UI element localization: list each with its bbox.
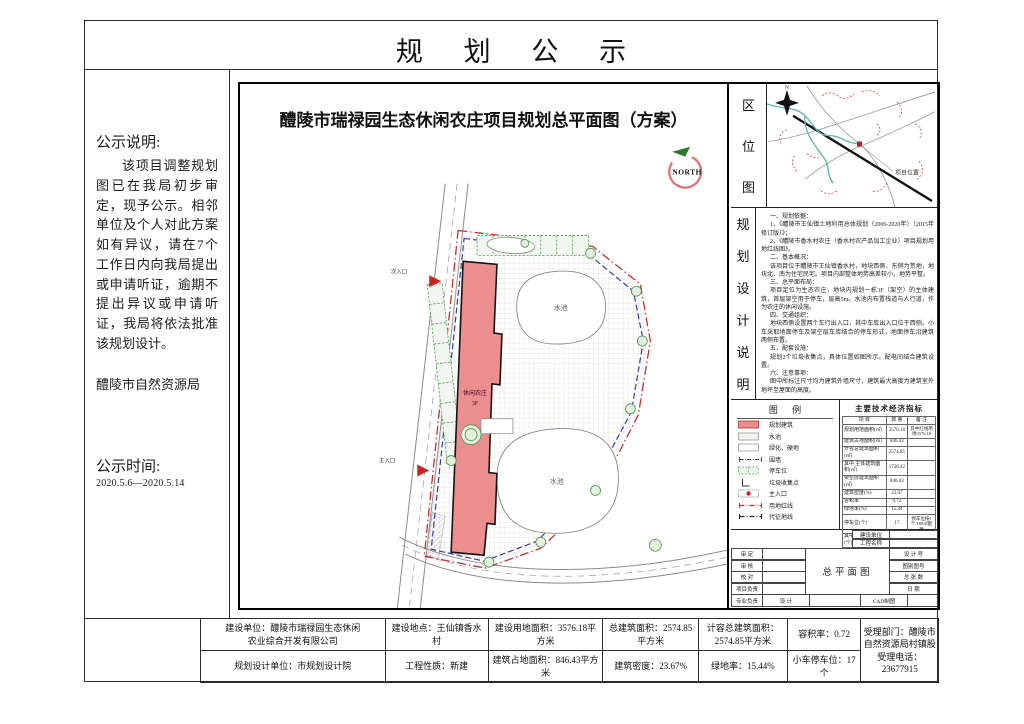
note-paragraph: 2、《醴陵市香水村农庄（香水村农产品加工企业）项目规划用地红线图》。 — [761, 238, 934, 255]
north-compass: NORTH — [664, 147, 706, 193]
pond-north-label: 水池 — [554, 303, 568, 312]
note-paragraph: 地块西侧设置两个车行出入口，其中车库出入口位于西侧。小车采取地面停车及架空层车库… — [761, 320, 934, 345]
document-sheet: 规 划 公 示 公示说明: 该项目调整规划图已在我局初步审定，现予公示。相邻单位… — [84, 20, 938, 682]
entrance-main: 主入口 — [379, 457, 429, 477]
location-map-drawing: 项目位置 N — [767, 84, 938, 207]
reviewer-label: 审 核 — [731, 560, 763, 572]
land-area-cell: 建设用地面积：3576.18平方米 — [488, 619, 602, 651]
legend-item: 停车位 — [737, 465, 833, 477]
main-entrance-swatch — [737, 489, 764, 498]
note-paragraph: 一、规划依据： — [761, 213, 934, 221]
legend-title: 图 例 — [737, 403, 833, 419]
location-map: 项目位置 N — [767, 84, 938, 207]
countable-gfa-cell: 计容总建筑面积： 2574.85平方米 — [699, 619, 788, 651]
legend-item: 围墙 — [737, 454, 833, 466]
svg-text:主入口: 主入口 — [379, 457, 395, 465]
notice-time-range: 2020.5.6—2020.5.14 — [96, 478, 218, 489]
indicators-header-row: 项 目 数 量 备 注 — [843, 417, 936, 425]
proofreader-label: 校 对 — [731, 571, 763, 583]
note-paragraph: 该项目位于醴陵市王仙镇香水村，地块西侧、东侧为荒地，地块北、南为住宅民宅。项目内… — [761, 263, 934, 280]
notice-body: 该项目调整规划图已在我局初步审定，现予公示。相邻单位及个人对此方案如有异议，请在… — [96, 156, 218, 354]
project-type-cell: 工程性质：新建 — [385, 651, 488, 683]
designer-value — [809, 594, 861, 607]
planned-building-swatch — [737, 420, 764, 429]
designer-cell: 规划设计单位：市规划设计院 — [201, 651, 386, 683]
north-arrow-icon — [672, 147, 690, 157]
indicator-row: 容积率0.72 — [843, 498, 936, 506]
summary-row-1: 建设单位：醴陵市瑞禄园生态休闲 农业综合开发有限公司 建设地点：王仙镇香水村 建… — [201, 619, 939, 651]
legend-item: 垃圾收集点 — [737, 477, 833, 489]
note-paragraph: 四、交通组织： — [761, 312, 934, 320]
legend: 图 例 规划建筑 水池 绿化、硬地 — [731, 400, 840, 529]
owner-cell: 建设单位：醴陵市瑞禄园生态休闲 农业综合开发有限公司 — [201, 619, 386, 651]
indicator-row: 计容总建筑面积(㎡)2574.85 — [843, 446, 936, 461]
project-lead-value — [762, 583, 806, 595]
map-river — [767, 104, 857, 183]
notice-heading: 公示说明: — [96, 131, 218, 152]
green-ratio-cell: 绿地率：15.44% — [699, 651, 788, 683]
proofreader-value — [762, 571, 806, 583]
far-cell: 容积率：0.72 — [787, 619, 861, 651]
legend-item: 绿化、硬地 — [737, 442, 833, 454]
indicator-row: 建筑密度(%)23.67 — [843, 490, 936, 498]
summary-row-2: 规划设计单位：市规划设计院 工程性质：新建 建筑占地面积：846.43平方米 建… — [201, 651, 939, 683]
indicators: 主要技术经济指标 项 目 数 量 备 注 规划用地面积(㎡)3576.18其中红… — [840, 400, 938, 529]
note-paragraph: 1、《醴陵市王仙镇土地利用总体规划（2006-2020年）（2015年修订版）》… — [761, 221, 934, 238]
planning-notice-page: 规 划 公 示 公示说明: 该项目调整规划图已在我局初步审定，现予公示。相邻单位… — [0, 0, 1024, 724]
pond-south-label: 水池 — [550, 476, 564, 485]
svg-text:N: N — [785, 85, 789, 91]
site-location-cell: 建设地点：王仙镇香水村 — [385, 619, 488, 651]
note-paragraph: 五、配套设施： — [761, 345, 934, 353]
drawing-frame: 水池 水池 休闲农庄 3F — [238, 82, 940, 610]
indicator-row: 绿地率(%)15.44 — [843, 506, 936, 514]
garbage-point-swatch — [737, 478, 764, 487]
map-railway — [793, 116, 932, 201]
indicator-row: 架空层建筑面积(㎡)846.43 — [843, 475, 936, 490]
project-location-marker — [857, 142, 862, 147]
drawing-no-label: 图别图号 — [889, 560, 938, 572]
note-paragraph: 三、总平面布局： — [761, 279, 934, 287]
legend-item: 规划建筑 — [737, 419, 833, 431]
project-name-value-cell — [889, 539, 938, 548]
legend-item: 水池 — [737, 431, 833, 443]
building-floors-label: 3F — [472, 401, 479, 407]
notice-panel: 公示说明: 该项目调整规划图已在我局初步审定，现予公示。相邻单位及个人对此方案如… — [85, 69, 230, 619]
design-notes-label: 规 划 设 计 说 明 — [731, 208, 756, 399]
drawing-name-cell: 总平面图 — [805, 548, 890, 595]
page-title: 规 划 公 示 — [85, 30, 937, 69]
footprint-cell: 建筑占地面积：846.43平方米 — [488, 651, 602, 683]
building-label: 休闲农庄 — [463, 389, 487, 397]
location-map-section: 区 位 图 — [731, 84, 938, 208]
accepting-dept-cell: 受理部门：醴陵市 自然资源局村镇股 受理电话：23677915 — [861, 619, 939, 683]
indicator-row: 建筑占地面积(㎡)846.43 — [843, 438, 936, 446]
indicators-title: 主要技术经济指标 — [842, 403, 936, 416]
north-label: NORTH — [672, 168, 702, 177]
pond-swatch — [737, 432, 764, 441]
legend-item: 代征地线 — [737, 511, 833, 523]
entrance-secondary: 次入口 — [391, 267, 441, 287]
design-notes-text: 一、规划依据： 1、《醴陵市王仙镇土地利用总体规划（2006-2020年）（20… — [756, 208, 938, 399]
note-paragraph: 六、注意事项： — [761, 370, 934, 378]
approver-value — [762, 548, 806, 560]
design-no-label: 设 计 号 — [889, 548, 938, 560]
indicator-row: 规划用地面积(㎡)3576.18其中红线用地3576.18 — [843, 425, 936, 438]
pavilion-box — [481, 419, 513, 434]
sheet-count-label: 总 张 数 — [889, 571, 938, 583]
note-paragraph: 二、基本概况： — [761, 254, 934, 262]
date-label: 日 期 — [889, 583, 938, 595]
notice-agency: 醴陵市自然资源局 — [96, 374, 218, 393]
discipline-lead-label: 专业负责 — [731, 594, 763, 607]
cad-value — [907, 594, 938, 607]
design-notes-section: 规 划 设 计 说 明 一、规划依据： 1、《醴陵市王仙镇土地利用总体规划（20… — [731, 208, 938, 400]
site-plan-area: 水池 水池 休闲农庄 3F — [240, 84, 729, 608]
project-location-label: 项目位置 — [895, 168, 919, 176]
cad-label: CAD制图 — [860, 594, 908, 607]
red-line-swatch — [737, 501, 764, 510]
parking-swatch — [737, 466, 764, 475]
legend-item: 主入口 — [737, 488, 833, 500]
requisition-line-swatch — [737, 512, 764, 521]
notice-time-heading: 公示时间: — [96, 455, 218, 476]
density-cell: 建筑密度：23.67% — [603, 651, 699, 683]
summary-table: 建设单位：醴陵市瑞禄园生态休闲 农业综合开发有限公司 建设地点：王仙镇香水村 建… — [200, 618, 939, 682]
right-panel: 区 位 图 — [731, 84, 938, 608]
title-block-section: 建设单位 工程名称 审 定 审 核 校 对 项目负责 专业负责 总平面 — [731, 530, 938, 608]
project-name-label-cell: 工程名称 — [852, 539, 890, 548]
project-lead-label: 项目负责 — [731, 583, 763, 595]
wall-swatch — [737, 455, 764, 464]
svg-text:次入口: 次入口 — [391, 267, 407, 275]
note-paragraph: 图中所标注尺寸均为建筑外墙尺寸，建筑最大高度为建筑室外地坪至屋面的高度。 — [761, 378, 934, 395]
note-paragraph: 项目定位为生态农庄，地块内规划一栋3F（架空）的主体建筑，首层架空用于停车，层高… — [761, 287, 934, 312]
title-block: 建设单位 工程名称 审 定 审 核 校 对 项目负责 专业负责 总平面 — [731, 530, 938, 608]
legend-indicators-section: 图 例 规划建筑 水池 绿化、硬地 — [731, 400, 938, 530]
map-north-icon: N — [775, 85, 799, 116]
reviewer-value — [762, 560, 806, 572]
legend-item: 用地红线 — [737, 500, 833, 512]
designer-label: 设 计 — [762, 594, 810, 607]
parking-count-cell: 小车停车位：17个 — [787, 651, 861, 683]
greenery-swatch — [737, 443, 764, 452]
indicator-row: 其中 主体建筑面积(㎡)1728.42 — [843, 461, 936, 476]
gfa-cell: 总建筑面积：2574.85平方米 — [603, 619, 699, 651]
approver-label: 审 定 — [731, 548, 763, 560]
plan-title: 醴陵市瑞禄园生态休闲农庄项目规划总平面图（方案） — [240, 106, 727, 131]
site-plan-drawing: 水池 水池 休闲农庄 3F — [240, 84, 727, 608]
note-paragraph: 规划2个垃圾收集点，具体位置如图所示。配电间结合建筑设置。 — [761, 354, 934, 371]
location-map-label: 区 位 图 — [731, 84, 767, 207]
